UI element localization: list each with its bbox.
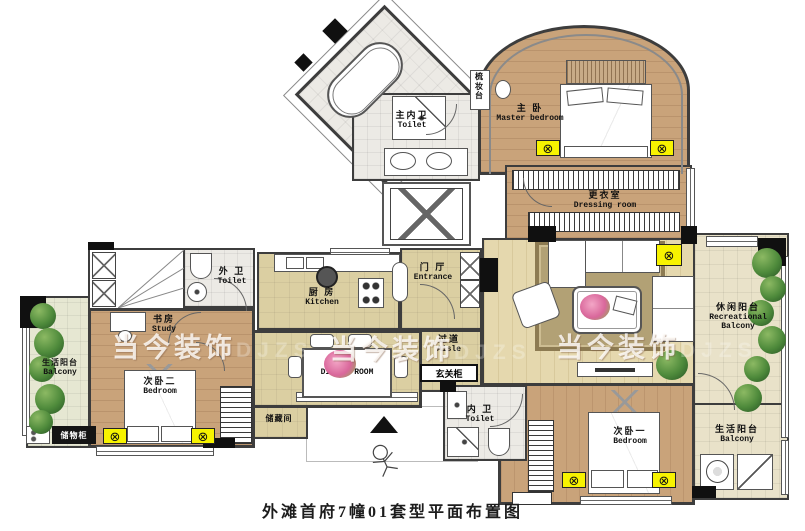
window [96,446,214,456]
floor-plan: 主内卫 Toilet 梳妆台 主 卧 Master bedroom 更衣室 Dr… [0,0,805,531]
window [781,440,789,495]
room-label-zh: 外 卫 [207,266,257,277]
lamp-symbol-icon [656,244,682,266]
window [580,496,672,505]
lamp-symbol-icon [652,472,676,488]
north-arrow-icon [370,416,398,433]
room-label-en: Balcony [697,435,777,445]
plant [34,328,64,358]
lamp-symbol-icon [536,140,560,156]
wok [316,266,338,288]
column [692,486,716,498]
watermark-text: 当今装饰 [112,333,236,363]
room-label-zh: 次卧二 [130,376,190,387]
watermark-suffix: DJZS [236,339,314,362]
bed-canopy [596,390,654,414]
sink-basin [426,152,452,170]
watermark: 当今装饰DJZS [330,328,532,367]
plan-caption: 外滩首府7幢01套型平面布置图 [262,498,523,522]
storage-cabinet-label: 储物柜 [61,430,88,441]
column [681,226,697,244]
room-label-zh: 主内卫 [377,110,447,121]
stove [358,278,384,308]
room-label-zh: 生活阳台 [697,424,777,435]
room-label-en: Balcony [30,368,90,378]
washer-drum [706,460,729,483]
sofa-chaise [548,240,586,288]
closet-box [92,280,116,307]
pillow [591,470,624,488]
pillow [127,426,159,442]
room-label-en: Dressing room [560,201,650,211]
watermark-text: 当今装饰 [330,335,454,365]
room-label-en: Bedroom [130,387,190,397]
shower [447,427,479,457]
room-label-zh: 梳妆台 [472,72,486,101]
master-headboard [566,60,646,84]
watermark-suffix: DJZS [454,341,532,364]
pillow [161,426,193,442]
flower-centerpiece [580,294,610,320]
room-label-zh: 次卧一 [600,426,660,437]
column [88,242,114,250]
sink-basin [390,152,416,170]
room-label-master-bedroom: 主 卧 Master bedroom [482,103,578,123]
room-label-bedroom-two: 次卧二 Bedroom [130,376,190,396]
kitchen-sink [286,257,304,269]
plant [30,303,56,329]
room-label-life-balcony-left: 生活阳台 Balcony [30,358,90,377]
plant [760,276,786,302]
room-label-en: Entrance [402,273,464,283]
column [528,226,556,242]
watermark-text: 当今装饰 [556,333,680,363]
watermark-suffix: DJZS [680,339,758,362]
stool [495,80,511,99]
lamp-symbol-icon [191,428,215,444]
room-label-storage-room: 储藏间 [254,414,304,424]
room-label-en: Bedroom [600,437,660,447]
room-label-life-balcony-right: 生活阳台 Balcony [697,424,777,444]
plant [752,248,782,278]
room-label-en: Master bedroom [482,114,578,124]
room-label-zh: 门 厅 [402,262,464,273]
room-label-entrance: 门 厅 Entrance [402,262,464,282]
wardrobe [220,386,252,444]
room-label-dressing: 更衣室 Dressing room [560,190,650,210]
dressing-table-label: 梳妆台 [472,72,486,101]
pillow [606,87,643,105]
shoe-cabinet [460,280,480,308]
column [480,258,498,292]
lamp-symbol-icon [650,140,674,156]
plant [734,384,762,412]
toilet [488,428,510,456]
room-label-bedroom-one: 次卧一 Bedroom [600,426,660,446]
room-label-master-toilet: 主内卫 Toilet [377,110,447,130]
elevator-x [390,188,463,240]
room-label-zh: 储藏间 [254,414,304,424]
room-label-en: Toilet [377,121,447,131]
room-label-outer-toilet: 外 卫 Toilet [207,266,257,286]
room-label-zh: 休闲阳台 [698,302,778,313]
column [440,380,456,392]
room-label-zh: 内 卫 [455,404,505,415]
wardrobe [528,420,554,492]
room-label-en: Toilet [207,277,257,287]
laundry-sink [737,454,773,490]
entry-cabinet-label: 玄关柜 [435,367,462,380]
storage-cabinet: 储物柜 [52,426,96,444]
lamp-symbol-icon [103,428,127,444]
sliding-door-lines [118,250,184,308]
room-label-en: Toilet [455,415,505,425]
room-label-zh: 厨 房 [292,287,352,298]
sink [187,282,207,302]
watermark: 当今装饰DJZS [112,326,314,365]
room-label-zh: 更衣室 [560,190,650,201]
room-label-zh: 生活阳台 [30,358,90,368]
bed-bench [564,146,648,158]
closet-box [92,252,116,279]
watermark: 当今装饰DJZS [556,326,758,365]
room-label-en: Kitchen [292,298,352,308]
room-label-inner-toilet: 内 卫 Toilet [455,404,505,424]
lamp-symbol-icon [562,472,586,488]
room-label-zh: 书房 [134,314,194,325]
plant [29,410,53,434]
room-label-zh: 主 卧 [482,103,578,114]
room-label-kitchen: 厨 房 Kitchen [292,287,352,307]
window [706,236,758,247]
